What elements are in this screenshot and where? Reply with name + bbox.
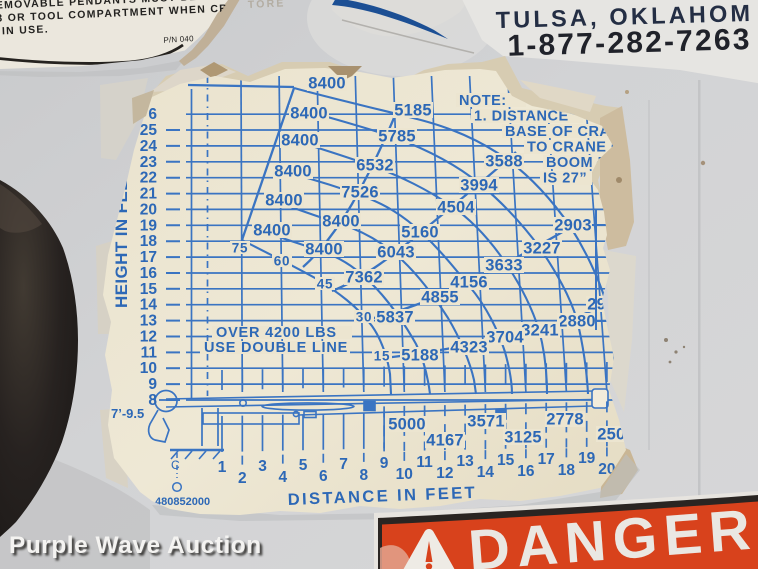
svg-text:13: 13	[456, 453, 474, 470]
svg-text:14: 14	[477, 464, 495, 481]
svg-text:30: 30	[356, 310, 373, 325]
svg-text:2: 2	[238, 470, 247, 487]
svg-text:3227: 3227	[523, 240, 561, 258]
svg-text:3633: 3633	[485, 257, 523, 275]
svg-text:22: 22	[140, 170, 157, 187]
svg-text:5188: 5188	[401, 347, 439, 365]
svg-text:16: 16	[517, 463, 535, 480]
svg-text:5837: 5837	[376, 309, 414, 327]
svg-text:Purple Wave Auction: Purple Wave Auction	[9, 532, 262, 559]
svg-text:75: 75	[232, 241, 249, 256]
svg-text:4504: 4504	[437, 199, 475, 217]
svg-text:3704: 3704	[486, 329, 524, 347]
svg-text:USE DOUBLE LINE: USE DOUBLE LINE	[204, 340, 348, 356]
svg-text:1-877-282-7263: 1-877-282-7263	[507, 23, 752, 63]
svg-text:7362: 7362	[345, 269, 383, 287]
svg-text:19: 19	[578, 450, 596, 467]
svg-text:8400: 8400	[274, 163, 312, 181]
svg-text:8400: 8400	[305, 241, 343, 259]
svg-text:P/N 040: P/N 040	[163, 34, 194, 45]
svg-text:10: 10	[140, 360, 157, 377]
svg-text:3: 3	[258, 458, 267, 475]
svg-text:12: 12	[436, 465, 453, 482]
svg-text:20: 20	[140, 201, 157, 218]
svg-text:4167: 4167	[426, 432, 464, 450]
svg-text:3571: 3571	[467, 413, 505, 431]
svg-text:11: 11	[141, 344, 158, 361]
svg-text:17: 17	[140, 249, 157, 266]
svg-text:9: 9	[380, 455, 389, 472]
svg-text:2880: 2880	[558, 313, 596, 331]
svg-text:IN USE.: IN USE.	[2, 23, 50, 37]
svg-text:5: 5	[299, 457, 308, 474]
svg-text:4323: 4323	[450, 339, 488, 357]
svg-text:6532: 6532	[356, 157, 394, 175]
svg-text:8400: 8400	[308, 75, 346, 93]
svg-text:5160: 5160	[401, 224, 439, 242]
svg-text:15: 15	[374, 349, 391, 364]
svg-text:5185: 5185	[394, 102, 432, 120]
svg-text:14: 14	[140, 297, 158, 314]
svg-text:24: 24	[140, 138, 158, 155]
svg-text:8400: 8400	[265, 192, 303, 210]
svg-text:7: 7	[339, 456, 348, 473]
svg-text:1. DISTANCE: 1. DISTANCE	[474, 109, 569, 125]
svg-text:8: 8	[359, 467, 368, 484]
svg-text:13: 13	[140, 313, 158, 330]
svg-text:3241: 3241	[521, 322, 559, 340]
svg-text:18: 18	[140, 233, 158, 250]
svg-text:21: 21	[140, 186, 158, 203]
svg-text:19: 19	[140, 217, 158, 234]
svg-text:16: 16	[140, 265, 158, 282]
svg-text:8: 8	[148, 392, 157, 409]
svg-text:2778: 2778	[546, 411, 584, 429]
svg-text:3125: 3125	[504, 429, 542, 447]
svg-text:4855: 4855	[421, 289, 459, 307]
svg-text:18: 18	[558, 462, 576, 479]
svg-text:TORE: TORE	[248, 0, 286, 11]
svg-text:23: 23	[140, 154, 158, 171]
svg-text:15: 15	[140, 281, 158, 298]
svg-text:6043: 6043	[377, 244, 415, 262]
svg-text:8400: 8400	[290, 105, 328, 123]
svg-text:7’-9.5: 7’-9.5	[111, 406, 144, 421]
svg-text:8400: 8400	[322, 213, 360, 231]
svg-text:10: 10	[396, 466, 413, 483]
svg-text:5785: 5785	[378, 128, 416, 146]
svg-text:45: 45	[317, 277, 334, 292]
svg-text:C: C	[171, 458, 180, 472]
svg-text:2903: 2903	[554, 217, 592, 235]
svg-text:3588: 3588	[485, 153, 523, 171]
svg-text:8400: 8400	[253, 222, 291, 240]
svg-text:3994: 3994	[460, 177, 498, 195]
svg-text:4: 4	[278, 469, 287, 486]
svg-text:12: 12	[140, 329, 157, 346]
svg-text:6: 6	[319, 468, 328, 485]
svg-text:7526: 7526	[341, 184, 379, 202]
svg-text:8400: 8400	[281, 132, 319, 150]
svg-text:IS 27”: IS 27”	[543, 171, 587, 187]
svg-text:15: 15	[497, 452, 515, 469]
svg-text:5000: 5000	[388, 416, 426, 434]
svg-text:25: 25	[140, 122, 158, 139]
svg-text:11: 11	[416, 454, 433, 471]
svg-text:NOTE:: NOTE:	[459, 93, 507, 109]
svg-text:1: 1	[218, 459, 227, 476]
svg-text:6: 6	[148, 106, 157, 123]
svg-text:OVER 4200 LBS: OVER 4200 LBS	[216, 325, 337, 341]
svg-text:17: 17	[538, 451, 555, 468]
svg-text:60: 60	[274, 254, 291, 269]
svg-text:9: 9	[148, 376, 157, 393]
